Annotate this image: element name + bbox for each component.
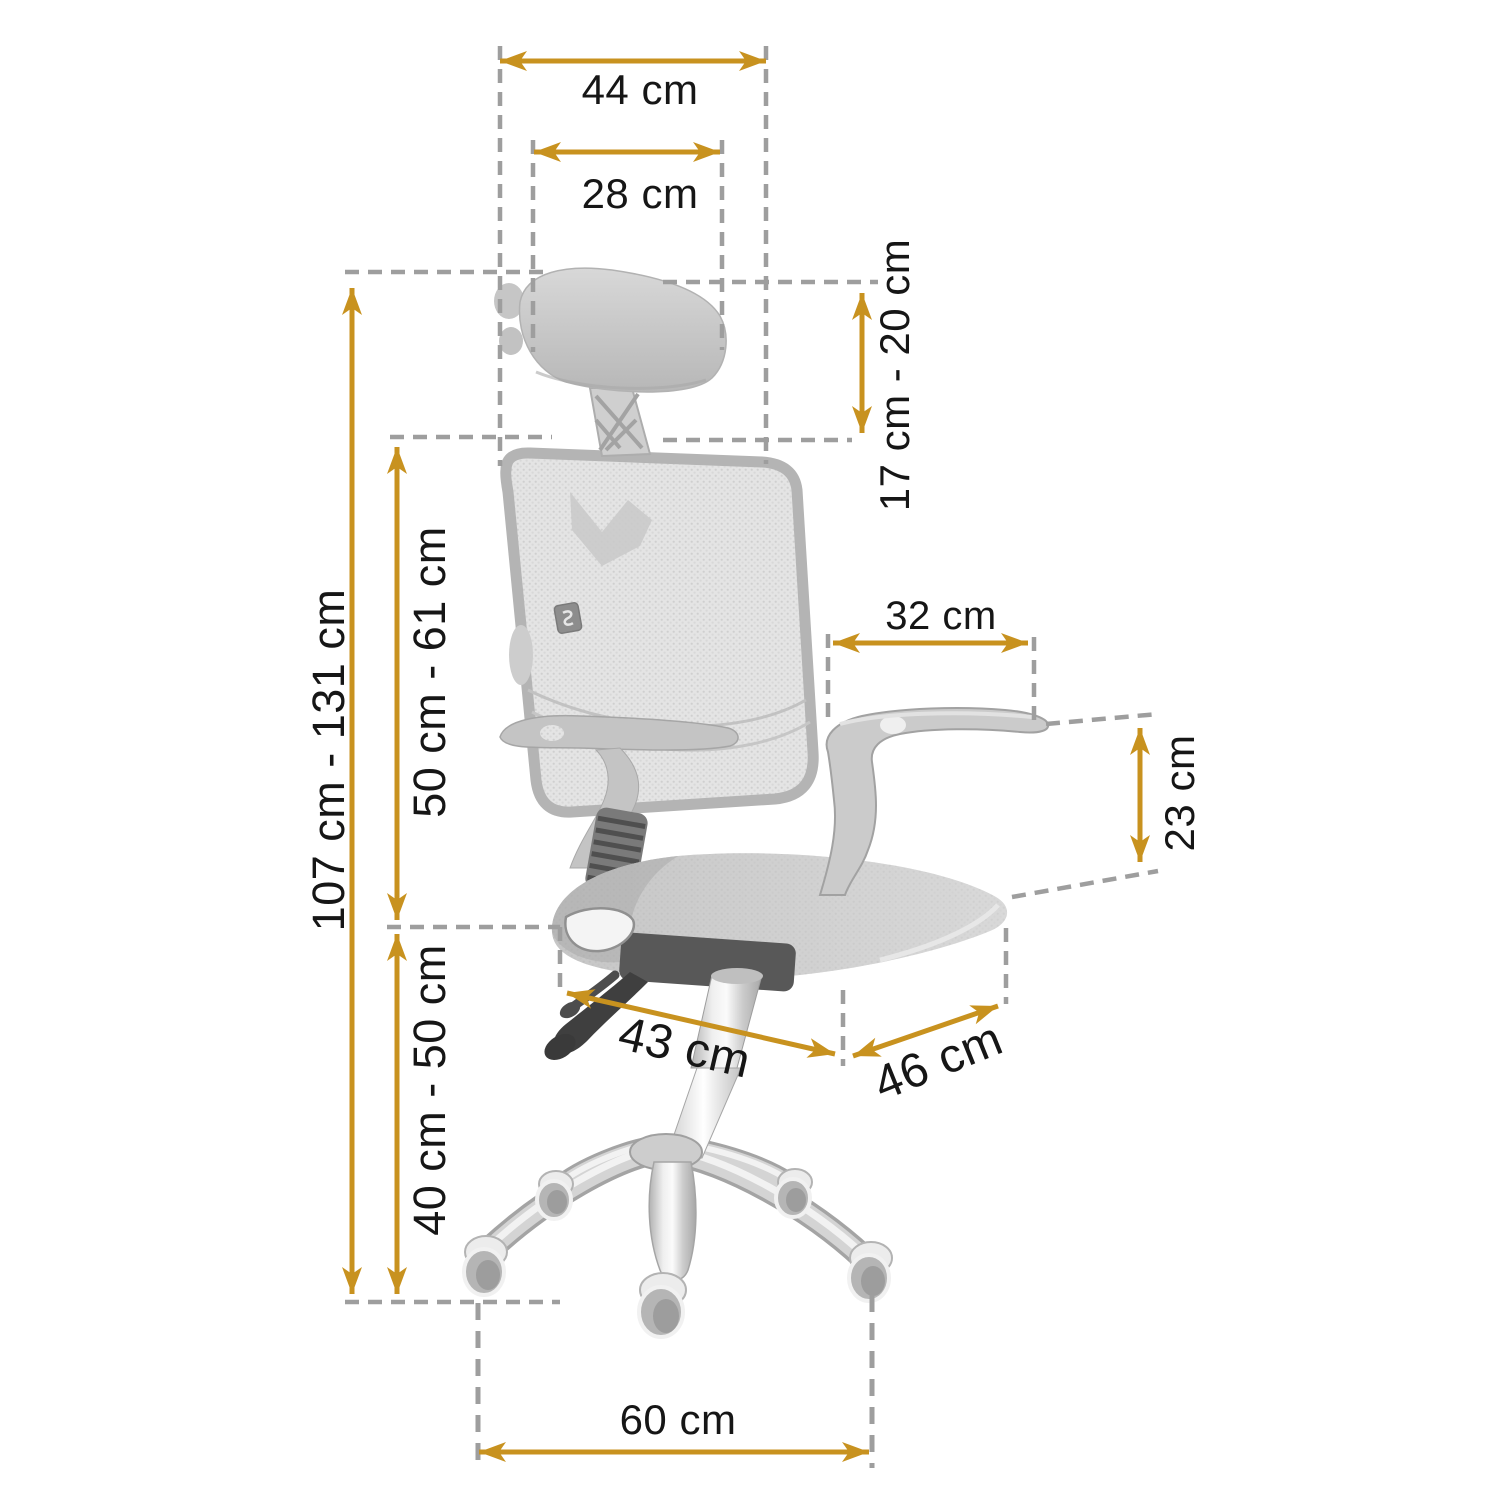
brand-logo-patch: [554, 602, 582, 634]
caster-rear-right: [776, 1169, 812, 1217]
label-armrest-length: 32 cm: [885, 594, 996, 638]
caster-front-right: [849, 1242, 892, 1301]
armrest-near: [820, 708, 1048, 895]
headrest-bracket: [590, 388, 650, 456]
guide-slant-armbottom: [1012, 871, 1158, 897]
guide-slant-armtop: [1046, 714, 1158, 724]
armrest-far-cutout: [540, 725, 564, 741]
caster-front-left: [464, 1236, 507, 1295]
cylinder-cover: [649, 1162, 696, 1281]
label-seat-height-range: 40 cm - 50 cm: [404, 944, 455, 1236]
dimension-diagram-canvas: 44 cm 28 cm 17 cm - 20 cm 107 cm - 131 c…: [0, 0, 1500, 1500]
label-backrest-height-range: 50 cm - 61 cm: [404, 526, 455, 818]
dimension-diagram: 44 cm 28 cm 17 cm - 20 cm 107 cm - 131 c…: [0, 0, 1500, 1500]
label-armrest-height: 23 cm: [1156, 735, 1203, 852]
label-base-diameter: 60 cm: [620, 1396, 737, 1443]
label-headrest-height-range: 17 cm - 20 cm: [871, 239, 918, 512]
label-total-height-range: 107 cm - 131 cm: [303, 589, 354, 932]
lumbar-side-bulge: [509, 625, 533, 685]
backrest: [506, 453, 813, 812]
caster-front-center: [639, 1273, 686, 1337]
label-headrest-cushion-width: 28 cm: [582, 170, 699, 217]
armrest-near-cutout: [880, 716, 906, 734]
chair-illustration: [464, 268, 1048, 1337]
headrest-cushion: [519, 268, 726, 392]
backrest-frame: [506, 453, 813, 812]
cylinder-collar: [711, 968, 763, 984]
caster-rear-left: [537, 1171, 573, 1219]
headrest: [494, 268, 726, 392]
headrest-knob-lower: [499, 327, 523, 355]
label-headrest-outer-width: 44 cm: [582, 66, 699, 113]
